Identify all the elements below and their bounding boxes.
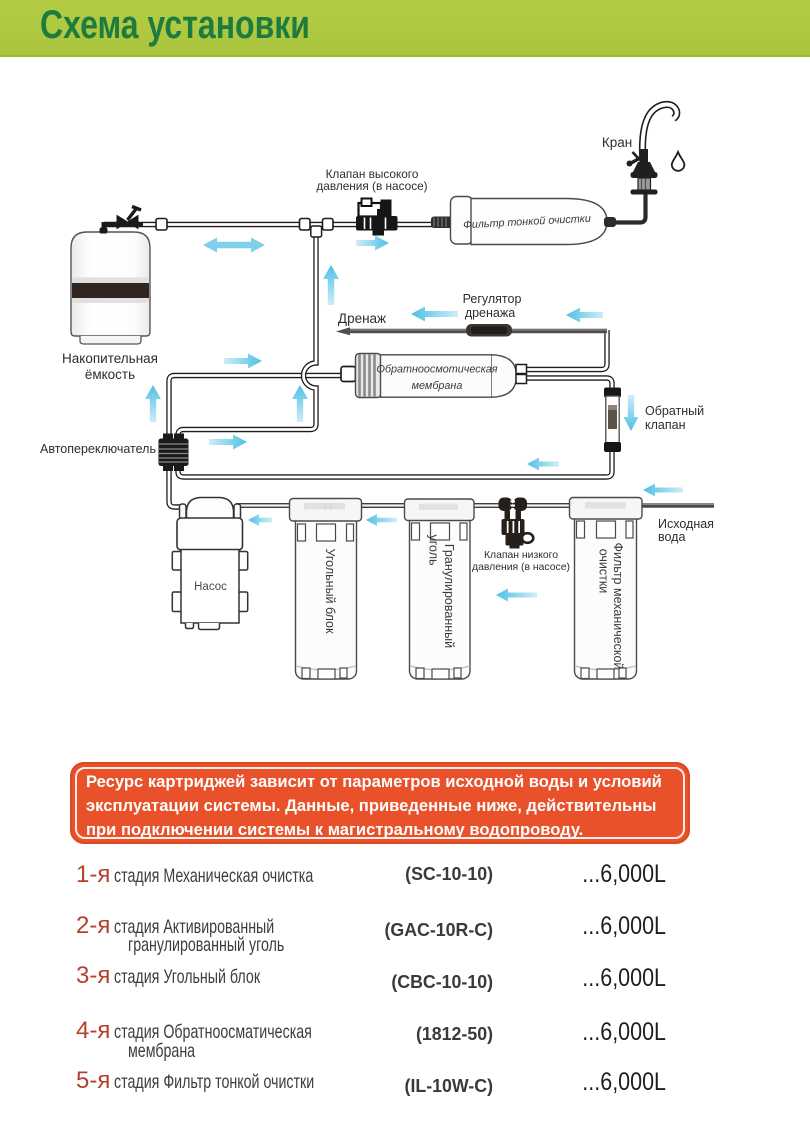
svg-text:вода: вода bbox=[658, 530, 685, 544]
svg-text:дренажа: дренажа bbox=[465, 306, 515, 320]
svg-text:Автопереключатель: Автопереключатель bbox=[40, 442, 156, 456]
svg-text:Клапан низкого: Клапан низкого bbox=[484, 550, 558, 561]
svg-text:уголь: уголь bbox=[427, 534, 441, 565]
svg-text:Кран: Кран bbox=[602, 135, 632, 150]
svg-text:давления (в насосе): давления (в насосе) bbox=[472, 562, 570, 573]
svg-text:Регулятор: Регулятор bbox=[463, 292, 522, 306]
svg-text:Угольный блок: Угольный блок bbox=[323, 549, 337, 634]
svg-text:Гранулированный: Гранулированный bbox=[442, 544, 456, 648]
svg-text:клапан: клапан bbox=[645, 418, 686, 432]
svg-text:давления (в насосе): давления (в насосе) bbox=[316, 179, 427, 193]
svg-text:очистки: очистки bbox=[597, 549, 611, 594]
svg-text:Накопительная: Накопительная bbox=[62, 351, 158, 366]
svg-text:Обратный: Обратный bbox=[645, 404, 704, 418]
svg-text:Исходная: Исходная bbox=[658, 517, 714, 531]
svg-text:Дренаж: Дренаж bbox=[338, 311, 386, 326]
svg-text:ёмкость: ёмкость bbox=[85, 367, 135, 382]
svg-text:Фильтр механической: Фильтр механической bbox=[611, 543, 625, 670]
svg-text:мембрана: мембрана bbox=[412, 380, 463, 392]
svg-text:Обратноосмотическая: Обратноосмотическая bbox=[377, 364, 498, 376]
svg-text:Насос: Насос bbox=[194, 581, 227, 593]
